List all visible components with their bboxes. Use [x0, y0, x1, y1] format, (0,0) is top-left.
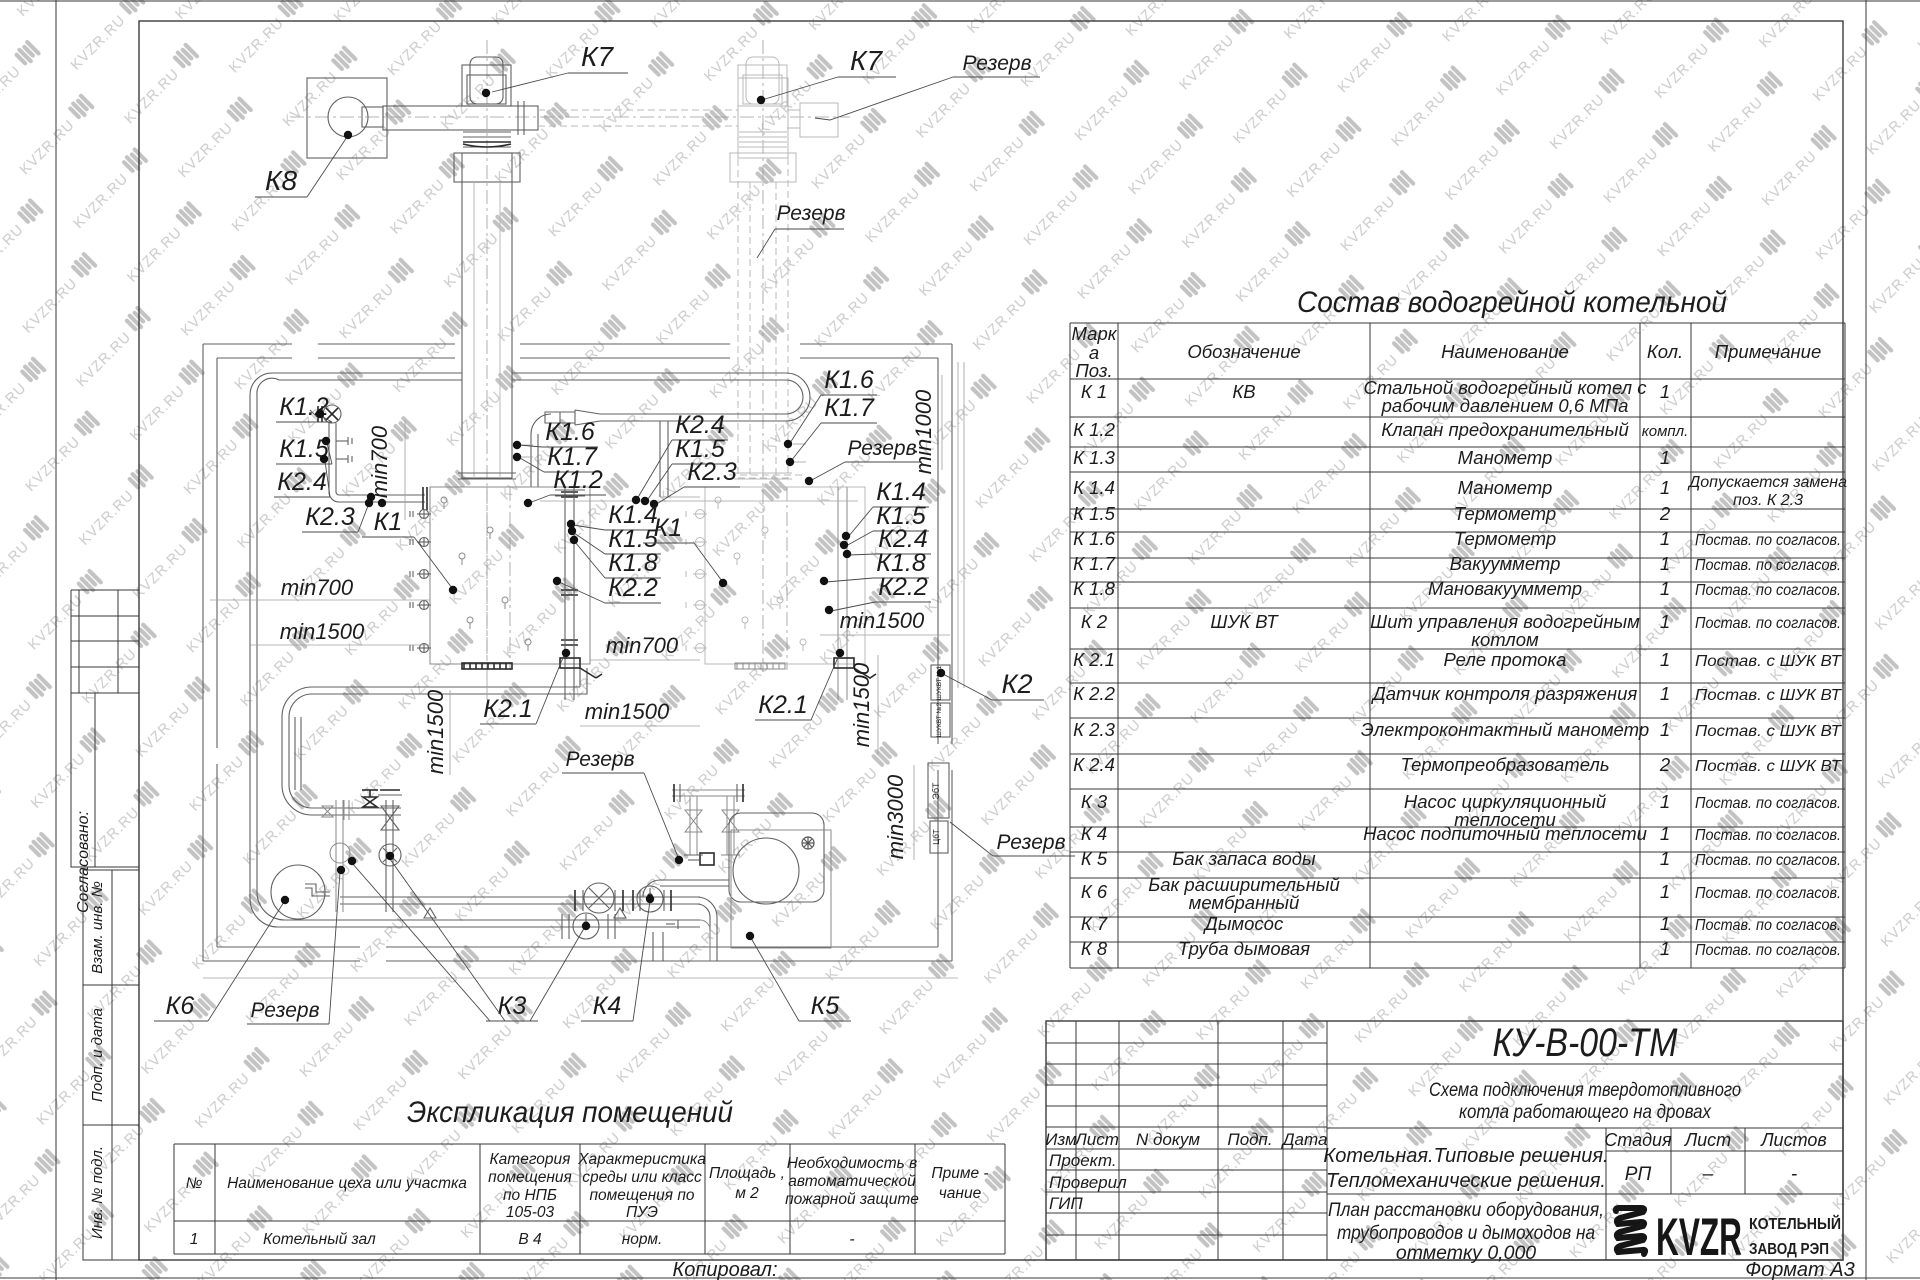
svg-text:1: 1 [1660, 938, 1670, 959]
svg-text:К7: К7 [581, 41, 615, 72]
svg-text:Кол.: Кол. [1647, 341, 1683, 362]
svg-text:К 1.7: К 1.7 [1073, 553, 1115, 574]
svg-text:ЦбТ: ЦбТ [932, 829, 941, 845]
svg-text:Проект.: Проект. [1049, 1151, 1117, 1170]
svg-text:Допускается замена: Допускается замена [1687, 474, 1847, 491]
svg-text:min1500: min1500 [585, 699, 670, 724]
svg-text:Состав водогрейной котельной: Состав водогрейной котельной [1297, 286, 1727, 319]
svg-text:Формат А3: Формат А3 [1745, 1259, 1854, 1280]
svg-text:Резерв: Резерв [776, 202, 845, 225]
svg-text:Подп. и дата: Подп. и дата [89, 1008, 106, 1102]
svg-text:№: № [186, 1175, 203, 1192]
svg-text:К 1.5: К 1.5 [1073, 503, 1115, 524]
svg-text:К7: К7 [850, 45, 884, 76]
svg-text:К1.6: К1.6 [824, 366, 874, 394]
svg-text:Необходимость в: Необходимость в [787, 1155, 917, 1172]
svg-text:К1.6: К1.6 [545, 418, 595, 446]
svg-text:Бак запаса воды: Бак запаса воды [1172, 848, 1316, 869]
svg-text:ГИП: ГИП [1049, 1194, 1083, 1213]
svg-text:min700: min700 [367, 425, 392, 498]
svg-text:Вакуумметр: Вакуумметр [1450, 553, 1561, 574]
svg-text:Постав. с ШУК ВТ: Постав. с ШУК ВТ [1695, 723, 1842, 740]
svg-text:К 2.3: К 2.3 [1073, 719, 1115, 740]
svg-text:К 6: К 6 [1081, 881, 1108, 902]
svg-text:котла работающего на дровах: котла работающего на дровах [1459, 1102, 1712, 1123]
svg-text:1: 1 [1660, 649, 1670, 670]
svg-text:котлом: котлом [1471, 629, 1539, 650]
svg-text:1: 1 [1660, 528, 1670, 549]
svg-text:К 1.6: К 1.6 [1073, 528, 1115, 549]
svg-text:Постав. по согласов.: Постав. по согласов. [1695, 942, 1841, 959]
svg-text:м 2: м 2 [735, 1185, 759, 1202]
svg-text:Поз.: Поз. [1075, 360, 1112, 381]
svg-text:мембранный: мембранный [1189, 892, 1300, 913]
svg-text:Термометр: Термометр [1454, 503, 1556, 524]
svg-text:К2.1: К2.1 [758, 691, 808, 719]
svg-text:Термометр: Термометр [1454, 528, 1556, 549]
svg-text:Термопреобразователь: Термопреобразователь [1400, 754, 1609, 775]
svg-text:Подп.: Подп. [1227, 1130, 1272, 1149]
svg-text:Листов: Листов [1760, 1130, 1827, 1150]
svg-text:min3000: min3000 [883, 774, 908, 859]
svg-text:105-03: 105-03 [506, 1204, 555, 1221]
svg-text:Котельный зал: Котельный зал [263, 1231, 376, 1248]
svg-text:min1500: min1500 [423, 689, 448, 774]
svg-text:Дата: Дата [1281, 1130, 1328, 1149]
svg-text:пожарной защите: пожарной защите [785, 1191, 919, 1208]
svg-text:Лист: Лист [1074, 1130, 1119, 1149]
svg-text:К2.2: К2.2 [878, 573, 928, 601]
svg-text:Лист: Лист [1684, 1130, 1731, 1150]
svg-text:автоматической: автоматической [788, 1173, 916, 1190]
svg-text:Постав. по согласов.: Постав. по согласов. [1695, 917, 1841, 934]
svg-text:среды или класс: среды или класс [582, 1169, 702, 1186]
svg-text:Резерв: Резерв [250, 999, 319, 1022]
svg-text:Изм: Изм [1045, 1130, 1077, 1149]
svg-text:К5: К5 [811, 992, 840, 1020]
svg-text:К2.1: К2.1 [483, 695, 533, 723]
svg-text:ШУК ВТ: ШУК ВТ [1210, 611, 1279, 632]
svg-text:В 4: В 4 [518, 1231, 542, 1248]
svg-text:1: 1 [1660, 477, 1670, 498]
svg-text:Датчик контроля разряжения: Датчик контроля разряжения [1371, 683, 1638, 704]
svg-text:Проверил: Проверил [1049, 1173, 1127, 1192]
svg-text:Постав. с ШУК ВТ: Постав. с ШУК ВТ [1695, 653, 1842, 670]
svg-text:2: 2 [1659, 754, 1671, 775]
svg-text:норм.: норм. [622, 1231, 663, 1248]
svg-text:Стадия: Стадия [1604, 1130, 1672, 1150]
svg-text:К 3: К 3 [1081, 791, 1108, 812]
svg-text:min700: min700 [281, 575, 354, 600]
svg-text:К 1.3: К 1.3 [1073, 447, 1115, 468]
svg-text:Резерв: Резерв [962, 52, 1031, 75]
svg-text:Дымосос: Дымосос [1203, 913, 1284, 934]
svg-text:Резерв: Резерв [996, 831, 1065, 854]
svg-text:1: 1 [1660, 381, 1670, 402]
svg-text:компл.: компл. [1642, 423, 1689, 440]
svg-text:К3: К3 [498, 992, 527, 1020]
svg-text:Мановакуумметр: Мановакуумметр [1428, 578, 1582, 599]
svg-text:К 5: К 5 [1081, 848, 1108, 869]
svg-text:К2: К2 [1002, 669, 1033, 699]
svg-text:Марк: Марк [1072, 323, 1118, 344]
svg-text:К2.4: К2.4 [277, 468, 327, 496]
svg-text:Постав. по согласов.: Постав. по согласов. [1695, 885, 1841, 902]
svg-text:План расстановки оборудования,: План расстановки оборудования, [1328, 1199, 1604, 1221]
svg-text:Взам. инв. №: Взам. инв. № [89, 881, 106, 974]
svg-text:К 2.4: К 2.4 [1073, 754, 1115, 775]
svg-text:1: 1 [1660, 578, 1670, 599]
svg-text:ШУКВТ №2: ШУКВТ №2 [936, 703, 943, 738]
svg-text:min1500: min1500 [840, 608, 925, 633]
svg-text:Постав. по согласов.: Постав. по согласов. [1695, 795, 1841, 812]
svg-text:по НПБ: по НПБ [503, 1187, 557, 1204]
svg-text:К 2.2: К 2.2 [1073, 683, 1115, 704]
svg-text:Постав. по согласов.: Постав. по согласов. [1695, 582, 1841, 599]
svg-text:Схема подключения твердотоплив: Схема подключения твердотопливного [1429, 1080, 1741, 1101]
svg-text:рабочим давлением 0,6 МПа: рабочим давлением 0,6 МПа [1381, 395, 1629, 416]
svg-text:К1.7: К1.7 [824, 394, 875, 422]
svg-text:min1500: min1500 [280, 619, 365, 644]
svg-text:Тепломеханические решения.: Тепломеханические решения. [1326, 1170, 1606, 1192]
svg-text:К6: К6 [166, 992, 195, 1020]
svg-text:Площадь ,: Площадь , [709, 1165, 785, 1182]
svg-text:Инв. № подл.: Инв. № подл. [89, 1146, 106, 1239]
svg-text:К1.2: К1.2 [553, 466, 603, 494]
svg-text:помещения: помещения [488, 1169, 572, 1186]
svg-text:-: - [1791, 1164, 1797, 1185]
svg-text:К2.2: К2.2 [608, 574, 658, 602]
svg-text:Постав. по согласов.: Постав. по согласов. [1695, 852, 1841, 869]
svg-text:Постав. по согласов.: Постав. по согласов. [1695, 827, 1841, 844]
svg-text:min1000: min1000 [911, 389, 936, 474]
svg-text:1: 1 [1660, 848, 1670, 869]
svg-text:min1500: min1500 [849, 662, 874, 747]
svg-text:К 2.1: К 2.1 [1073, 649, 1115, 670]
svg-text:Постав. по согласов.: Постав. по согласов. [1695, 532, 1841, 549]
svg-text:1: 1 [1660, 553, 1670, 574]
svg-text:К4: К4 [593, 992, 622, 1020]
svg-text:Манометр: Манометр [1458, 447, 1553, 468]
svg-text:1: 1 [1660, 913, 1670, 934]
svg-text:К1: К1 [374, 508, 403, 536]
svg-text:КВ: КВ [1232, 381, 1255, 402]
svg-text:-: - [849, 1231, 854, 1248]
svg-text:К 1: К 1 [1081, 381, 1107, 402]
svg-text:Резерв: Резерв [847, 437, 916, 460]
svg-text:Приме -: Приме - [931, 1165, 988, 1182]
svg-text:Труба дымовая: Труба дымовая [1178, 938, 1310, 959]
svg-text:отметку 0,000: отметку 0,000 [1396, 1242, 1536, 1264]
svg-text:Насос подпиточный теплосети: Насос подпиточный теплосети [1363, 823, 1647, 844]
svg-text:ЭбТ: ЭбТ [931, 782, 941, 800]
svg-text:поз. К 2.3: поз. К 2.3 [1733, 492, 1803, 509]
svg-text:К 1.8: К 1.8 [1073, 578, 1115, 599]
svg-text:min700: min700 [606, 633, 679, 658]
svg-text:КОТЕЛЬНЫЙ: КОТЕЛЬНЫЙ [1749, 1214, 1841, 1233]
svg-text:ЗАВОД РЭП: ЗАВОД РЭП [1749, 1241, 1829, 1258]
svg-text:К2.3: К2.3 [305, 503, 355, 531]
svg-text:Категория: Категория [490, 1151, 571, 1168]
svg-text:Клапан предохранительный: Клапан предохранительный [1381, 419, 1629, 440]
svg-text:К1.8: К1.8 [608, 549, 658, 577]
svg-text:К 1.4: К 1.4 [1073, 477, 1115, 498]
svg-text:К 8: К 8 [1081, 938, 1108, 959]
svg-text:К 7: К 7 [1081, 913, 1108, 934]
svg-text:1: 1 [1660, 881, 1670, 902]
svg-text:Обозначение: Обозначение [1187, 341, 1300, 362]
svg-text:1: 1 [1660, 683, 1670, 704]
svg-text:Наименование: Наименование [1441, 341, 1569, 362]
svg-text:Резерв: Резерв [565, 748, 634, 771]
svg-text:1: 1 [1660, 719, 1670, 740]
svg-text:ПУЭ: ПУЭ [626, 1204, 658, 1221]
svg-text:помещения по: помещения по [589, 1187, 694, 1204]
svg-text:К1: К1 [654, 514, 683, 542]
svg-text:Постав. с ШУК ВТ: Постав. с ШУК ВТ [1695, 758, 1842, 775]
svg-text:К 4: К 4 [1081, 823, 1107, 844]
svg-text:N докум: N докум [1136, 1130, 1200, 1149]
svg-text:трубопроводов и дымоходов на: трубопроводов и дымоходов на [1337, 1222, 1595, 1244]
svg-text:К 1.2: К 1.2 [1073, 419, 1115, 440]
svg-text:Постав. по согласов.: Постав. по согласов. [1695, 557, 1841, 574]
svg-text:2: 2 [1659, 503, 1671, 524]
svg-text:1: 1 [1660, 447, 1670, 468]
svg-text:К2.3: К2.3 [687, 458, 737, 486]
svg-text:–: – [1702, 1164, 1714, 1185]
svg-text:Реле протока: Реле протока [1444, 649, 1567, 670]
svg-text:Копировал:: Копировал: [672, 1259, 777, 1280]
svg-text:К8: К8 [265, 165, 298, 196]
svg-text:Постав. с ШУК ВТ: Постав. с ШУК ВТ [1695, 687, 1842, 704]
svg-text:KVZR: KVZR [1656, 1208, 1742, 1267]
svg-text:РП: РП [1625, 1164, 1652, 1185]
svg-text:1: 1 [190, 1231, 199, 1248]
svg-text:1: 1 [1660, 791, 1670, 812]
svg-text:Манометр: Манометр [1458, 477, 1553, 498]
svg-text:1: 1 [1660, 611, 1670, 632]
svg-text:Наименование цеха или участка: Наименование цеха или участка [227, 1175, 467, 1192]
svg-text:1: 1 [1660, 823, 1670, 844]
svg-text:К 2: К 2 [1081, 611, 1108, 632]
svg-text:Котельная.Типовые решения.: Котельная.Типовые решения. [1323, 1145, 1608, 1167]
svg-text:Экспликация помещений: Экспликация помещений [407, 1096, 733, 1129]
svg-text:чание: чание [939, 1185, 982, 1202]
svg-text:Примечание: Примечание [1715, 341, 1822, 362]
svg-text:КУ-В-00-ТМ: КУ-В-00-ТМ [1493, 1021, 1679, 1065]
svg-text:Характеристика: Характеристика [577, 1151, 706, 1168]
svg-text:Постав. по согласов.: Постав. по согласов. [1695, 615, 1841, 632]
svg-text:Электроконтактный манометр: Электроконтактный манометр [1361, 719, 1649, 740]
